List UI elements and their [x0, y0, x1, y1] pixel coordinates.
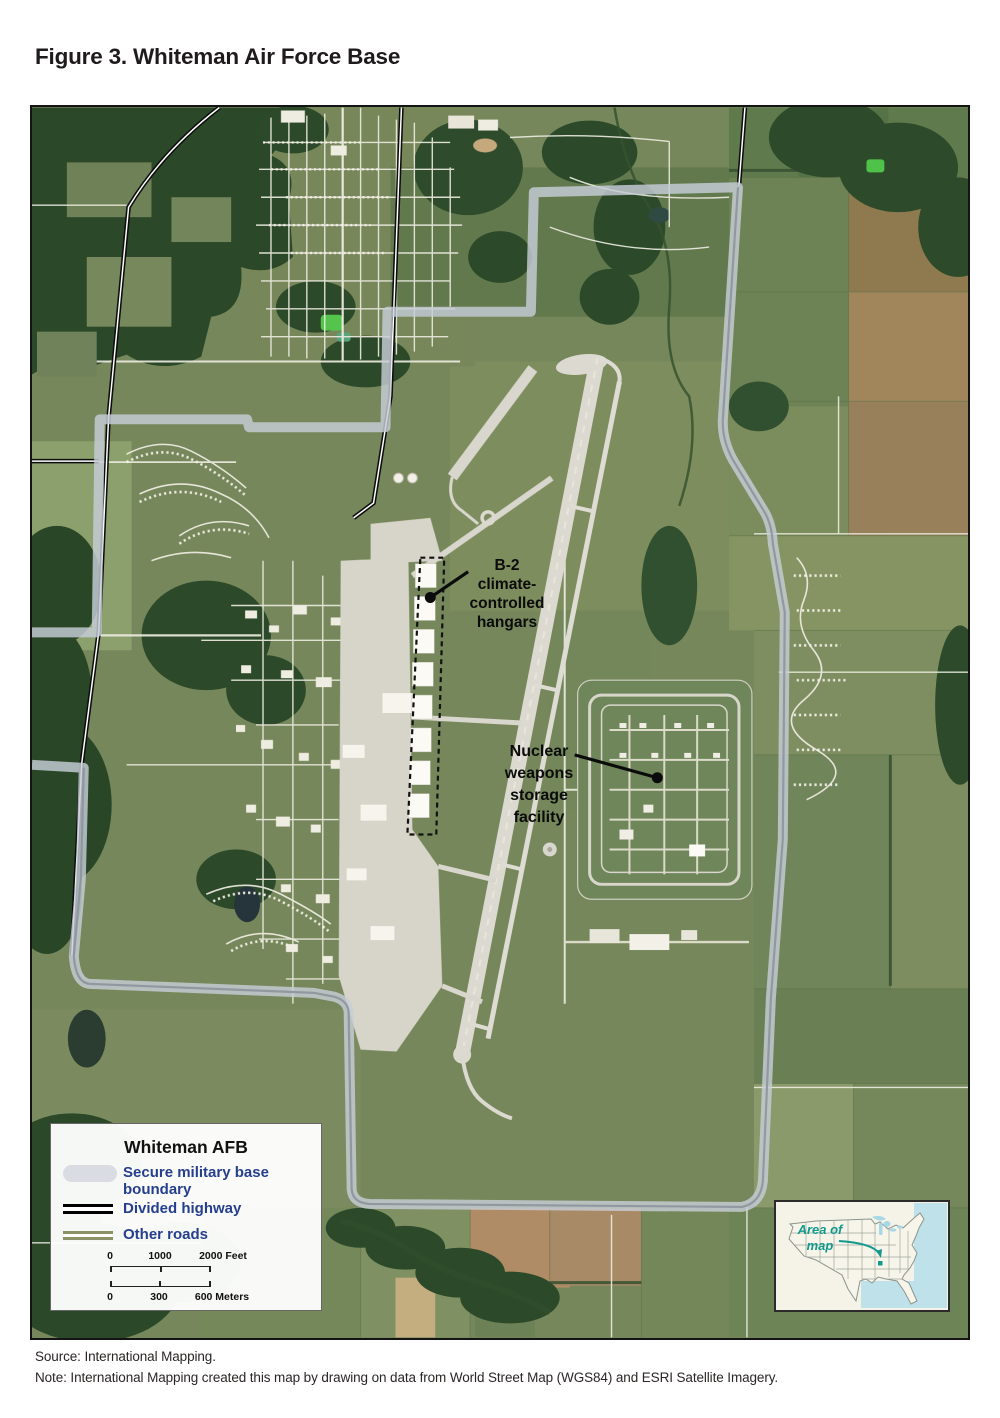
feet-tick-0: 0	[107, 1250, 113, 1262]
feet-scale-rule	[110, 1266, 211, 1273]
meters-tick-300: 300	[150, 1291, 168, 1303]
map-frame: B-2 climate- controlled hangars Nuclear …	[30, 105, 970, 1340]
area-of-map-label: Area of map	[782, 1222, 858, 1254]
feet-tick-2000: 2000 Feet	[199, 1250, 247, 1262]
map-legend: Whiteman AFB Secure military base bounda…	[50, 1123, 322, 1311]
meters-tick-0: 0	[107, 1291, 113, 1303]
legend-item-divided-highway: Divided highway	[51, 1200, 321, 1220]
scale-bars: 0 1000 2000 Feet 0 300 600 Meters	[110, 1250, 310, 1308]
nuclear-marker-dot	[652, 772, 663, 783]
legend-item-other-roads: Other roads	[51, 1226, 321, 1246]
legend-label: Divided highway	[123, 1200, 241, 1217]
b2-hangars-label: B-2 climate- controlled hangars	[442, 556, 572, 632]
divided-highway-swatch	[63, 1204, 113, 1214]
meters-scale-rule	[110, 1280, 211, 1287]
b2-marker-dot	[425, 592, 436, 603]
legend-label: Secure military base boundary	[123, 1164, 321, 1198]
other-roads-swatch	[63, 1231, 113, 1240]
source-line: Source: International Mapping.	[35, 1349, 216, 1364]
figure-title: Figure 3. Whiteman Air Force Base	[35, 44, 400, 70]
nuclear-storage-label: Nuclear weapons storage facility	[474, 741, 604, 829]
legend-item-secure-boundary: Secure military base boundary	[51, 1164, 321, 1184]
secure-boundary-swatch	[63, 1165, 117, 1182]
meters-tick-600: 600 Meters	[195, 1291, 249, 1303]
us-map	[776, 1202, 947, 1309]
inset-locator-map: Area of map	[774, 1200, 950, 1312]
feet-tick-1000: 1000	[148, 1250, 171, 1262]
legend-label: Other roads	[123, 1226, 208, 1243]
legend-title: Whiteman AFB	[51, 1137, 321, 1158]
figure-page: Figure 3. Whiteman Air Force Base	[0, 0, 1000, 1418]
note-line: Note: International Mapping created this…	[35, 1370, 778, 1385]
